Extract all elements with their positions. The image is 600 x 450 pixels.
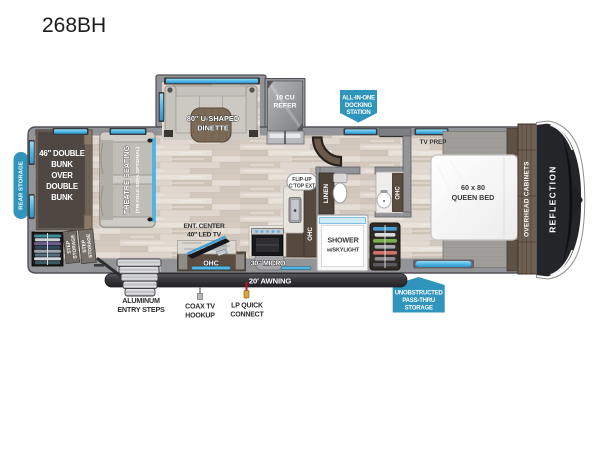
svg-text:UNOBSTRUCTED: UNOBSTRUCTED (395, 291, 444, 297)
svg-text:STATION: STATION (346, 110, 370, 116)
svg-text:TV PREP: TV PREP (420, 139, 447, 146)
svg-text:LINEN: LINEN (323, 184, 330, 204)
svg-text:BUNK: BUNK (51, 160, 73, 169)
svg-text:STORAGE: STORAGE (405, 306, 433, 312)
svg-text:OVER: OVER (51, 171, 73, 180)
svg-text:QUEEN BED: QUEEN BED (452, 193, 495, 202)
svg-text:60 x 80: 60 x 80 (461, 183, 485, 192)
svg-text:SHOWER: SHOWER (327, 236, 359, 245)
svg-text:20′ AWNING: 20′ AWNING (249, 277, 292, 286)
svg-text:40″ LED TV: 40″ LED TV (187, 232, 222, 239)
svg-text:REFER: REFER (273, 103, 296, 110)
svg-text:ENT. CENTER: ENT. CENTER (183, 223, 224, 230)
svg-text:PASS-THRU: PASS-THRU (402, 298, 435, 304)
svg-text:80″ U-SHAPED: 80″ U-SHAPED (187, 114, 240, 123)
svg-text:ENTRY STEPS: ENTRY STEPS (117, 305, 165, 314)
svg-text:OHC: OHC (307, 227, 314, 241)
svg-text:LP QUICK: LP QUICK (231, 303, 263, 310)
svg-text:COAX TV: COAX TV (185, 304, 215, 311)
svg-text:OHC: OHC (395, 186, 401, 200)
svg-text:DOCKING: DOCKING (345, 103, 372, 109)
svg-text:THEATRE SEATING: THEATRE SEATING (122, 145, 131, 214)
svg-text:C’TOP EXT: C’TOP EXT (289, 184, 315, 190)
svg-text:REAR STORAGE: REAR STORAGE (19, 161, 25, 210)
svg-text:DINETTE: DINETTE (197, 124, 229, 133)
svg-text:ALUMINUM: ALUMINUM (122, 296, 160, 305)
svg-text:w/SKYLIGHT: w/SKYLIGHT (326, 248, 360, 254)
svg-text:268BH: 268BH (42, 14, 106, 37)
svg-text:FLIP-UP: FLIP-UP (292, 177, 312, 183)
svg-text:30″ MICRO: 30″ MICRO (251, 261, 286, 268)
svg-text:46″ DOUBLE: 46″ DOUBLE (39, 149, 85, 158)
svg-text:OVERHEAD CABINETS: OVERHEAD CABINETS (524, 161, 531, 237)
svg-text:DOUBLE: DOUBLE (46, 182, 78, 191)
svg-text:10 CU: 10 CU (275, 95, 294, 102)
svg-text:CONNECT: CONNECT (230, 312, 264, 319)
svg-text:(TRI-FOLD SOFA OPTIONAL): (TRI-FOLD SOFA OPTIONAL) (135, 147, 141, 213)
svg-text:ALL-IN-ONE: ALL-IN-ONE (342, 95, 375, 101)
svg-text:HOOKUP: HOOKUP (185, 313, 215, 320)
svg-text:REFLECTION: REFLECTION (548, 165, 558, 233)
svg-text:BUNK: BUNK (51, 193, 73, 202)
svg-text:OHC: OHC (203, 261, 219, 268)
